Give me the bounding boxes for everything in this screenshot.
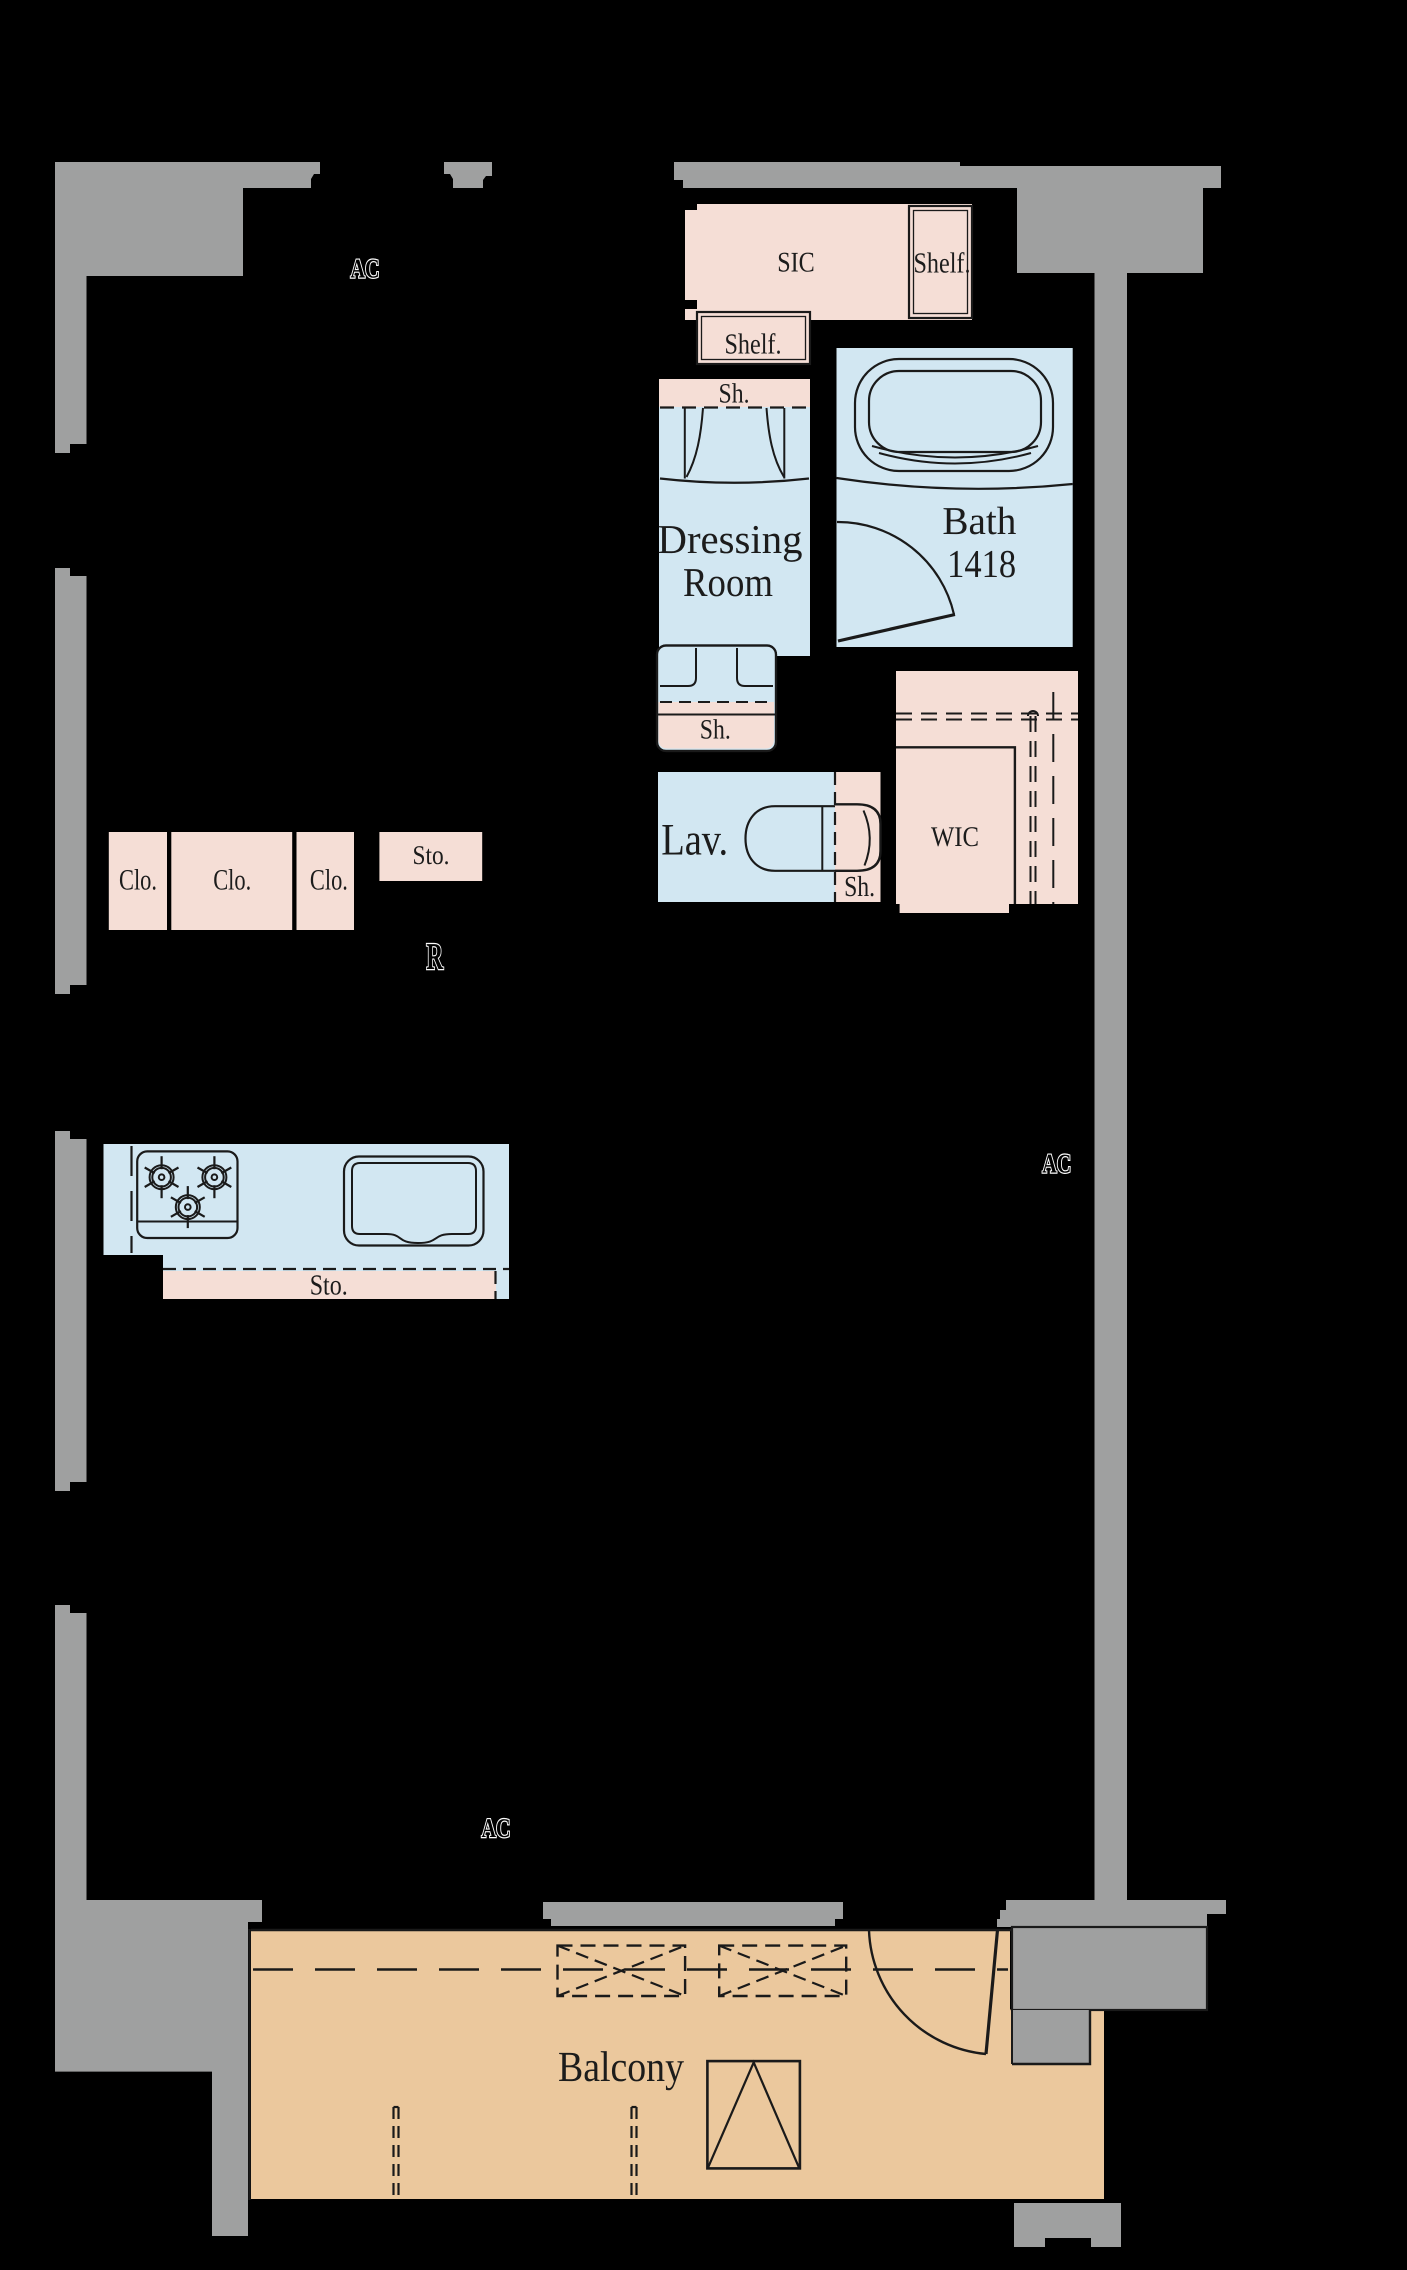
svg-text:AC: AC (1042, 1149, 1071, 1179)
svg-text:WIC: WIC (931, 822, 979, 853)
svg-text:Shelf.: Shelf. (914, 248, 971, 280)
svg-text:Sto.: Sto. (310, 1270, 348, 1302)
svg-text:Lav.: Lav. (661, 815, 728, 865)
svg-text:Shelf.: Shelf. (725, 329, 782, 361)
svg-text:Room: Room (683, 559, 773, 605)
svg-text:Clo.: Clo. (310, 865, 348, 897)
svg-text:Sto.: Sto. (413, 840, 450, 870)
svg-text:SIC: SIC (777, 248, 815, 279)
svg-text:AC: AC (482, 1813, 511, 1843)
svg-text:1418: 1418 (947, 542, 1016, 586)
svg-text:Sh.: Sh. (700, 715, 731, 746)
svg-text:Bath: Bath (942, 499, 1016, 543)
svg-text:AC: AC (351, 254, 380, 284)
svg-text:Sh.: Sh. (844, 871, 875, 903)
svg-text:Sh.: Sh. (719, 379, 750, 410)
svg-text:Dressing: Dressing (658, 516, 803, 562)
svg-text:Clo.: Clo. (119, 865, 157, 897)
svg-text:R: R (426, 936, 443, 978)
svg-text:Clo.: Clo. (213, 865, 251, 897)
svg-text:Balcony: Balcony (558, 2044, 684, 2091)
